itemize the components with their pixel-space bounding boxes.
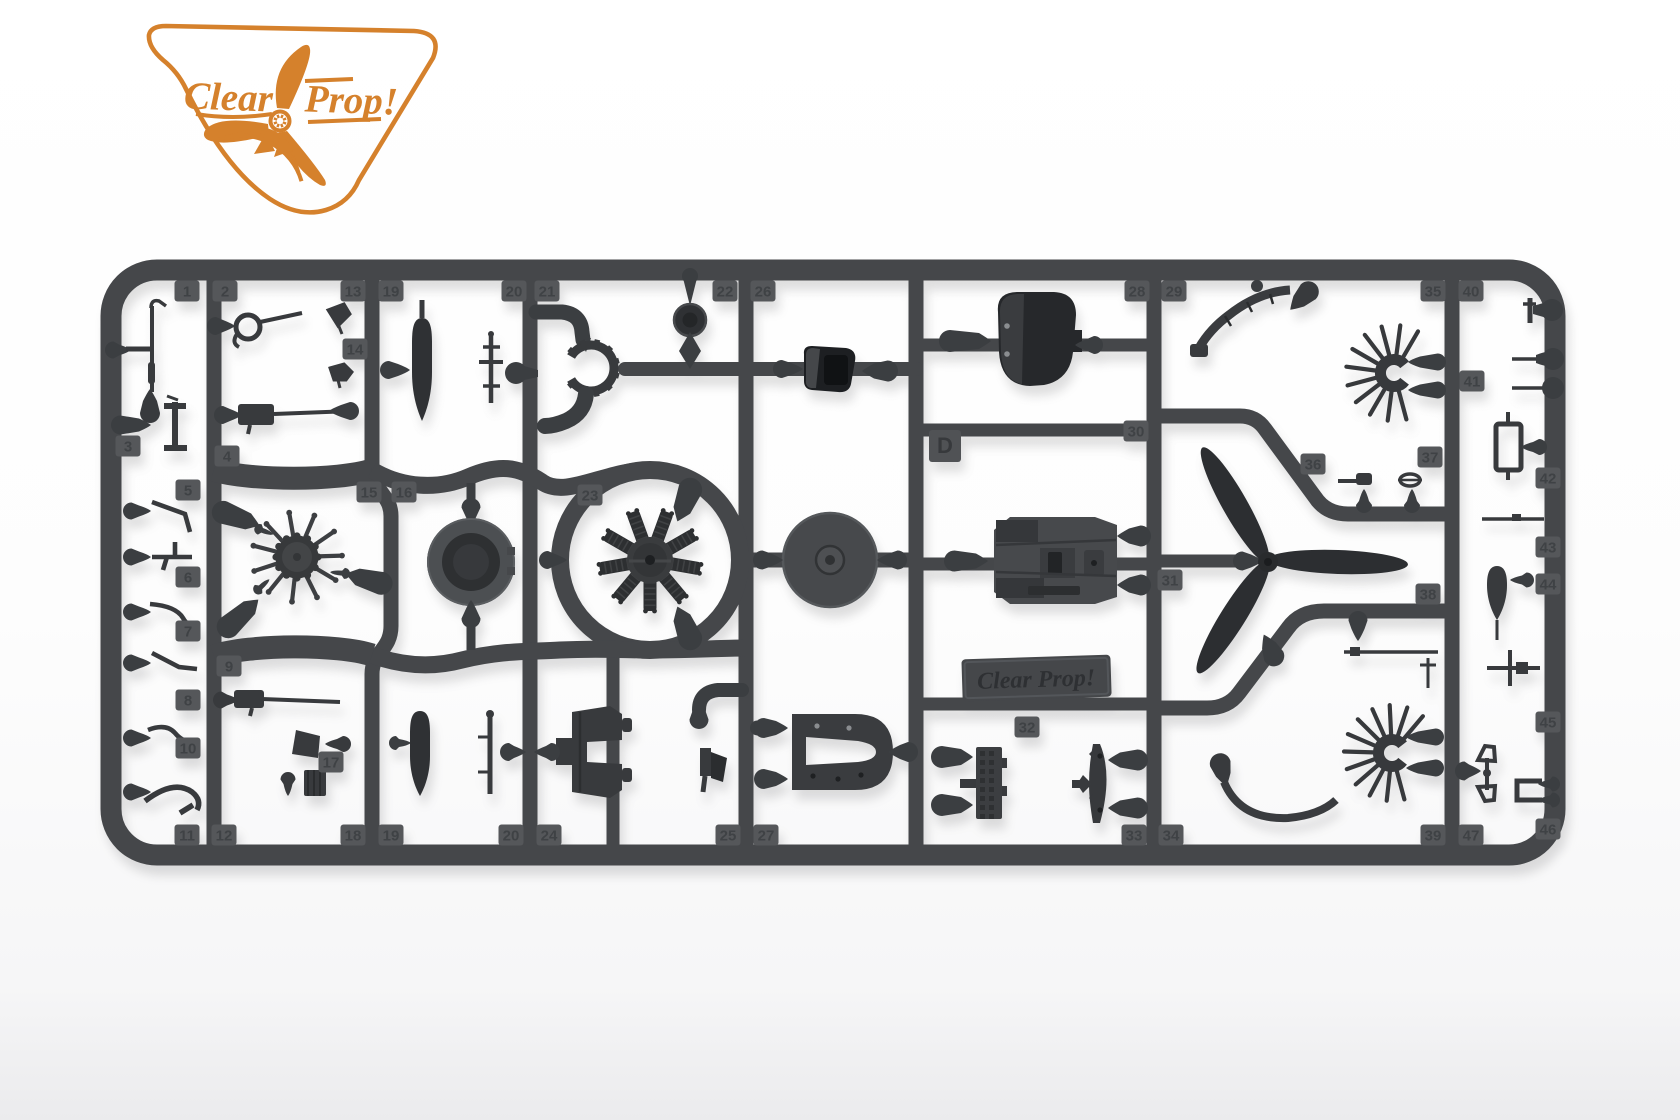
svg-text:19: 19 bbox=[383, 283, 400, 300]
svg-text:39: 39 bbox=[1425, 827, 1442, 844]
svg-text:45: 45 bbox=[1540, 714, 1557, 731]
svg-text:33: 33 bbox=[1126, 827, 1143, 844]
svg-text:8: 8 bbox=[184, 692, 192, 709]
svg-text:21: 21 bbox=[539, 283, 556, 300]
svg-text:7: 7 bbox=[184, 623, 192, 640]
svg-text:13: 13 bbox=[345, 283, 362, 300]
svg-text:28: 28 bbox=[1129, 283, 1146, 300]
svg-text:16: 16 bbox=[396, 484, 413, 501]
svg-text:18: 18 bbox=[345, 827, 362, 844]
svg-text:31: 31 bbox=[1162, 572, 1179, 589]
svg-text:19: 19 bbox=[383, 827, 400, 844]
svg-text:29: 29 bbox=[1166, 283, 1183, 300]
svg-text:9: 9 bbox=[225, 658, 233, 675]
svg-text:12: 12 bbox=[216, 827, 233, 844]
svg-text:40: 40 bbox=[1463, 283, 1480, 300]
svg-text:3: 3 bbox=[124, 438, 132, 455]
svg-text:D: D bbox=[937, 433, 953, 458]
svg-text:20: 20 bbox=[503, 827, 520, 844]
svg-text:27: 27 bbox=[758, 827, 775, 844]
svg-text:47: 47 bbox=[1463, 827, 1480, 844]
svg-text:37: 37 bbox=[1422, 449, 1439, 466]
svg-text:44: 44 bbox=[1540, 576, 1557, 593]
svg-text:14: 14 bbox=[347, 341, 364, 358]
svg-text:1: 1 bbox=[183, 283, 191, 300]
svg-text:46: 46 bbox=[1540, 821, 1557, 838]
svg-text:35: 35 bbox=[1425, 283, 1442, 300]
svg-text:15: 15 bbox=[361, 484, 378, 501]
svg-text:26: 26 bbox=[755, 283, 772, 300]
svg-text:2: 2 bbox=[221, 283, 229, 300]
svg-text:41: 41 bbox=[1464, 373, 1481, 390]
svg-text:42: 42 bbox=[1540, 470, 1557, 487]
svg-text:25: 25 bbox=[720, 827, 737, 844]
svg-text:22: 22 bbox=[717, 283, 734, 300]
svg-text:Prop!: Prop! bbox=[303, 77, 399, 123]
svg-text:36: 36 bbox=[1305, 456, 1322, 473]
svg-text:20: 20 bbox=[506, 283, 523, 300]
svg-text:43: 43 bbox=[1540, 539, 1557, 556]
svg-text:24: 24 bbox=[541, 827, 558, 844]
svg-text:34: 34 bbox=[1163, 827, 1180, 844]
svg-text:11: 11 bbox=[179, 827, 195, 844]
svg-text:10: 10 bbox=[180, 740, 197, 757]
svg-text:Clear Prop!: Clear Prop! bbox=[977, 665, 1096, 695]
svg-text:5: 5 bbox=[184, 482, 192, 499]
svg-text:6: 6 bbox=[184, 569, 192, 586]
svg-text:23: 23 bbox=[582, 487, 599, 504]
svg-text:4: 4 bbox=[223, 448, 232, 465]
svg-text:32: 32 bbox=[1019, 719, 1036, 736]
svg-text:38: 38 bbox=[1420, 586, 1437, 603]
svg-text:30: 30 bbox=[1128, 423, 1145, 440]
svg-text:17: 17 bbox=[323, 754, 340, 771]
